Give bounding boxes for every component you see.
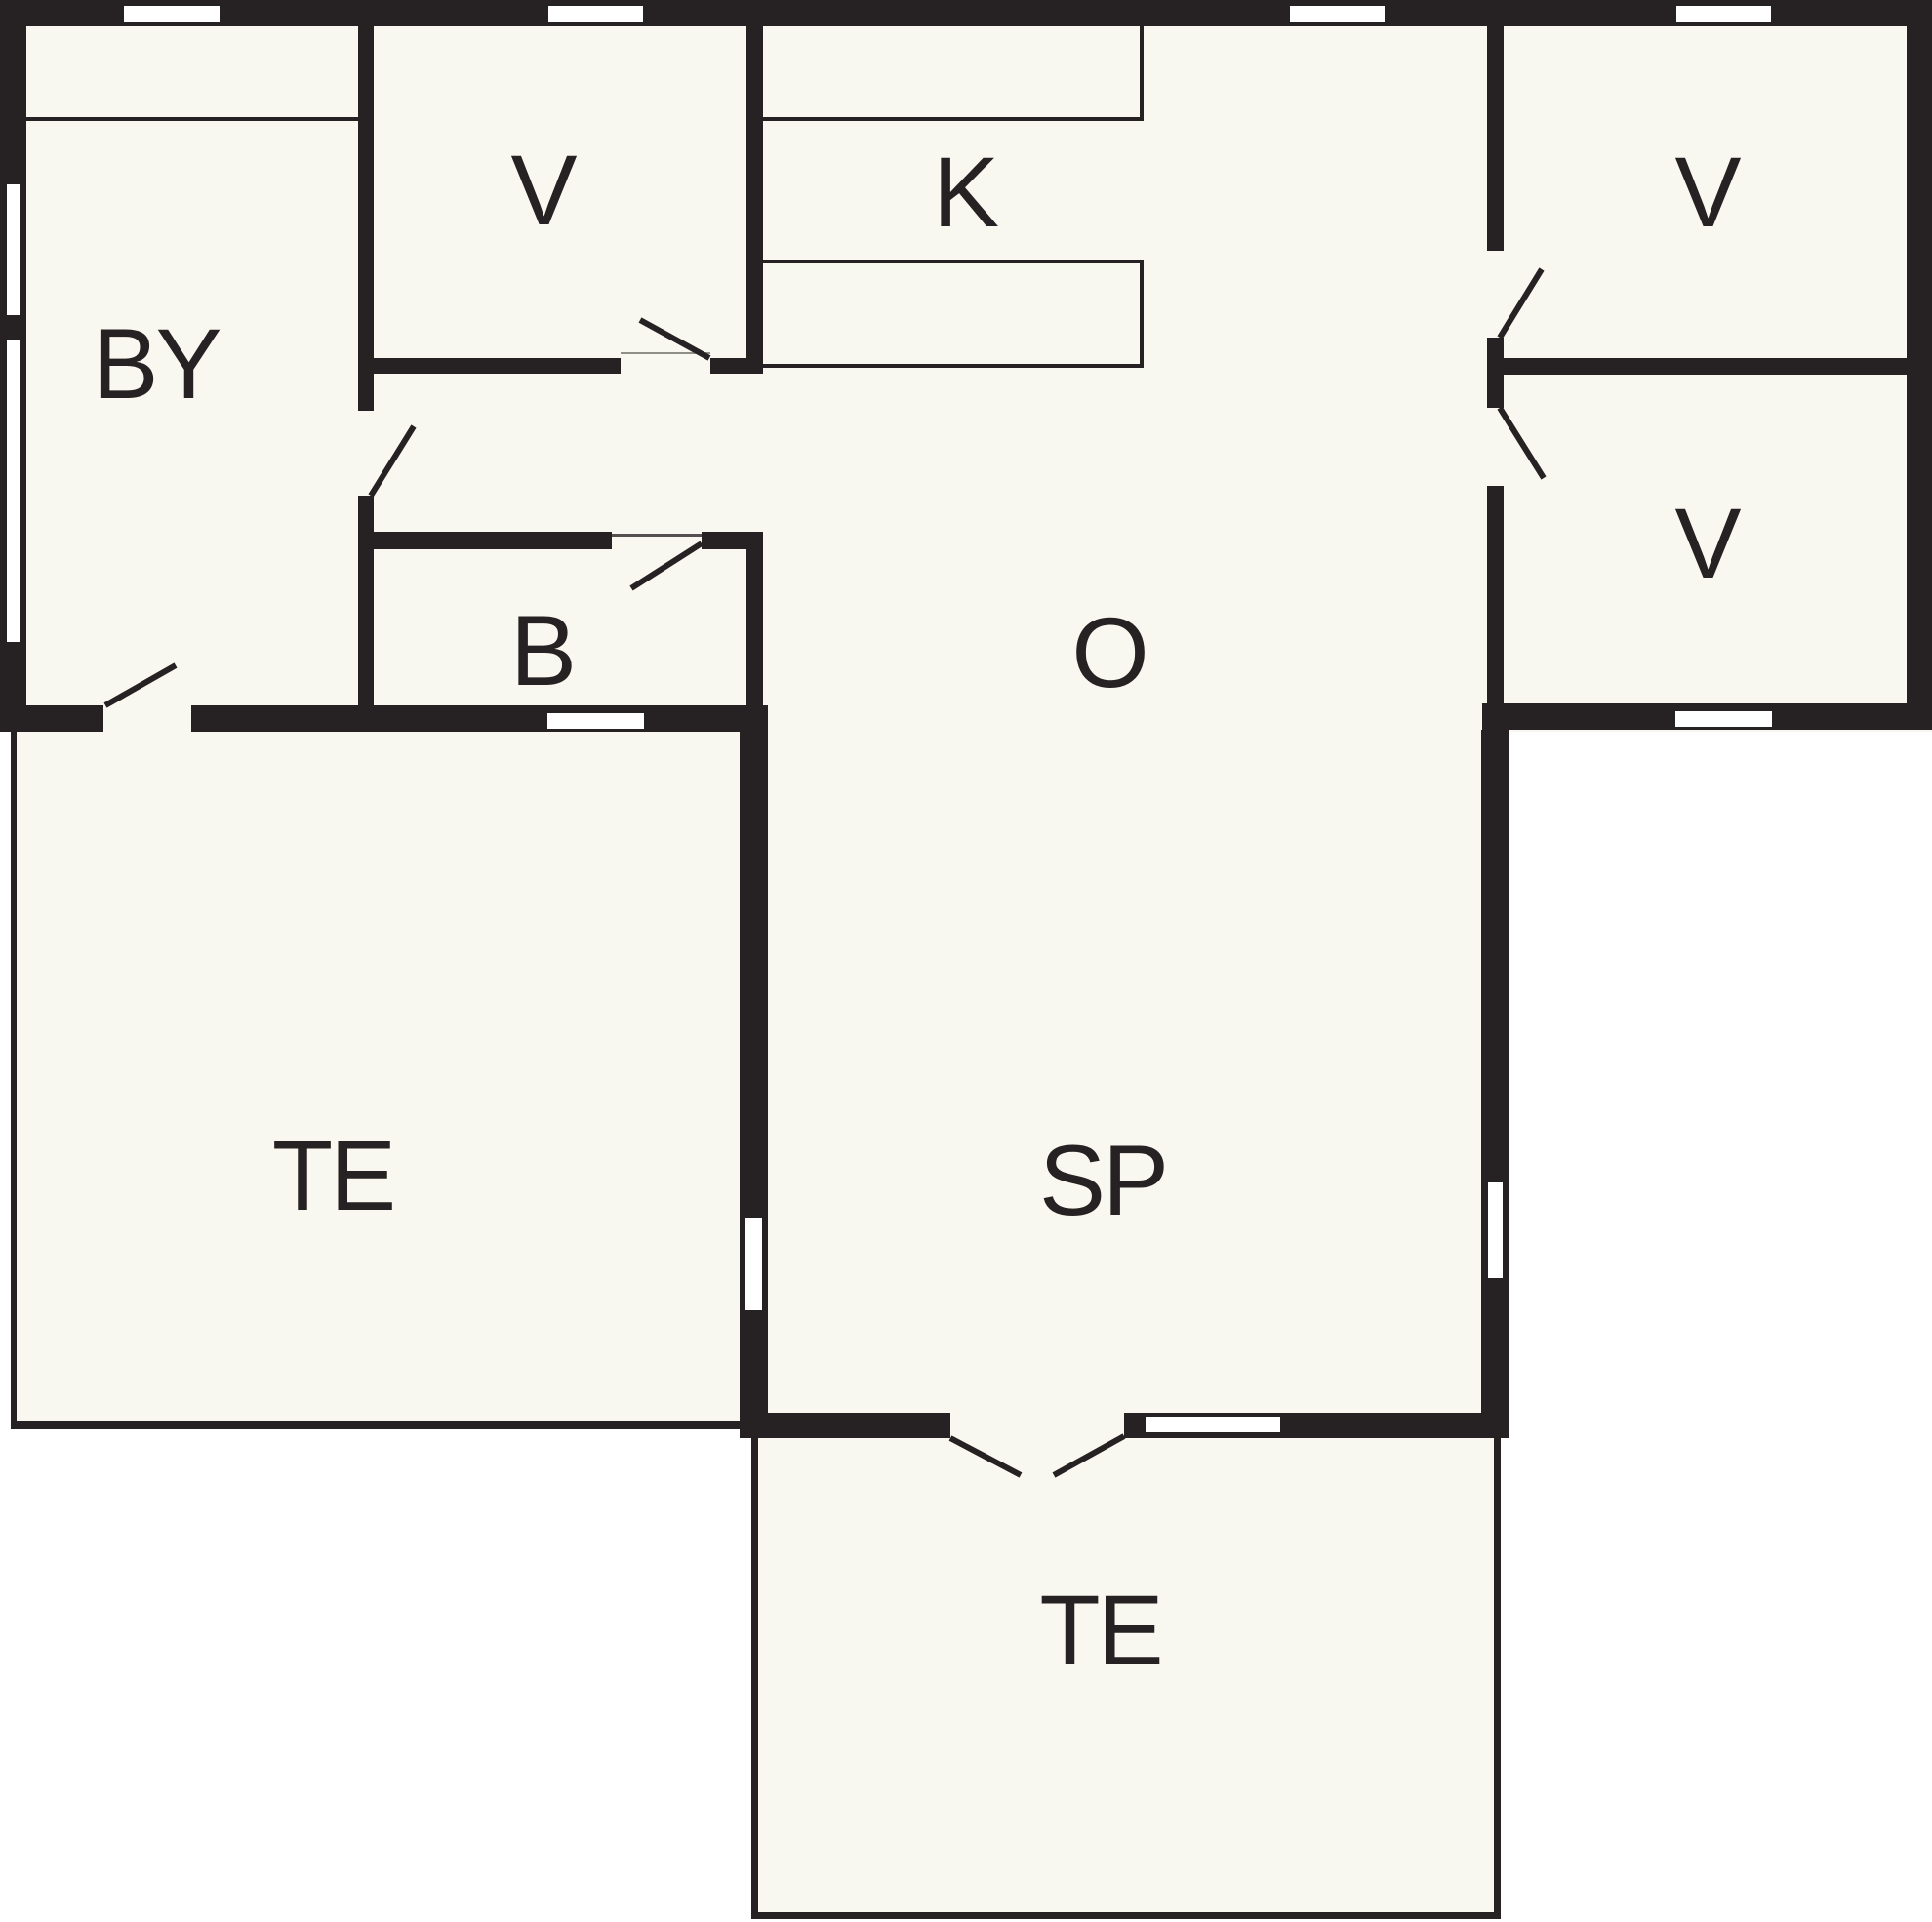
svg-text:B: B	[510, 595, 574, 706]
svg-text:BY: BY	[92, 308, 220, 420]
svg-text:TE: TE	[272, 1120, 393, 1231]
svg-text:K: K	[933, 137, 998, 248]
svg-text:TE: TE	[1039, 1575, 1160, 1686]
svg-text:V: V	[1674, 137, 1741, 248]
svg-text:SP: SP	[1039, 1125, 1166, 1236]
svg-text:V: V	[1674, 488, 1741, 599]
svg-text:O: O	[1071, 597, 1146, 708]
svg-text:V: V	[510, 135, 577, 246]
